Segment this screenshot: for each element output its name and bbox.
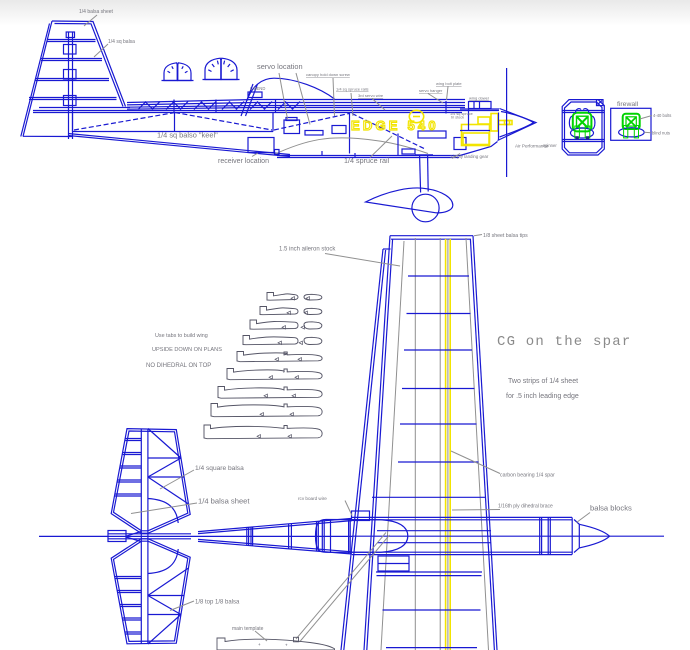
svg-text:receiver location: receiver location	[218, 158, 269, 165]
svg-text:servo location: servo location	[257, 62, 303, 71]
svg-text:main template: main template	[232, 626, 264, 632]
svg-text:spinner: spinner	[543, 143, 557, 148]
svg-text:firewall: firewall	[617, 101, 639, 108]
svg-text:1/8 sheet balsa tips: 1/8 sheet balsa tips	[483, 233, 528, 239]
svg-text:1/4 sq balsa: 1/4 sq balsa	[108, 39, 135, 45]
svg-text:Use tabs to build wing: Use tabs to build wing	[155, 333, 208, 339]
svg-text:3rd servo wire: 3rd servo wire	[358, 93, 384, 98]
svg-text:blind nuts: blind nuts	[652, 131, 670, 136]
svg-text:1/4 balsa sheet: 1/4 balsa sheet	[198, 497, 250, 506]
svg-text:1/4 sq spruce rails: 1/4 sq spruce rails	[336, 87, 368, 92]
svg-text:balsa blocks: balsa blocks	[590, 504, 632, 513]
svg-text:wing bolt plate: wing bolt plate	[436, 81, 462, 86]
svg-text:4-40 bolts: 4-40 bolts	[653, 113, 671, 118]
svg-text:L-BEND: L-BEND	[250, 86, 265, 91]
svg-text:1/16th ply dihedral brace: 1/16th ply dihedral brace	[498, 504, 553, 510]
svg-text:servo hanger: servo hanger	[419, 88, 443, 93]
svg-text:+: +	[285, 642, 288, 647]
svg-text:+: +	[258, 642, 261, 647]
svg-text:CG on the spar: CG on the spar	[497, 334, 631, 350]
svg-text:EDGE 540: EDGE 540	[351, 118, 439, 133]
svg-text:1/4 sq balso "keel": 1/4 sq balso "keel"	[157, 131, 218, 140]
svg-text:wing dowel: wing dowel	[469, 95, 489, 100]
svg-text:rcv board wire: rcv board wire	[298, 496, 327, 501]
svg-text:1.5 inch aileron stock: 1.5 inch aileron stock	[279, 247, 336, 253]
svg-text:Two strips of 1/4 sheet: Two strips of 1/4 sheet	[508, 378, 578, 385]
svg-text:canopy hold down screw: canopy hold down screw	[306, 72, 350, 77]
svg-text:for .5 inch leading edge: for .5 inch leading edge	[506, 393, 579, 400]
svg-text:NO DIHEDRAL ON TOP: NO DIHEDRAL ON TOP	[146, 363, 211, 369]
svg-text:tri stock: tri stock	[451, 116, 464, 120]
svg-text:carbon bearing 1/4 spar: carbon bearing 1/4 spar	[500, 473, 555, 479]
svg-text:UPSIDE DOWN ON PLANS: UPSIDE DOWN ON PLANS	[152, 347, 222, 353]
svg-text:1/4 balsa sheet: 1/4 balsa sheet	[79, 9, 114, 15]
svg-text:1/4 spruce rail: 1/4 spruce rail	[344, 156, 390, 165]
svg-text:1/8 top 1/8 balsa: 1/8 top 1/8 balsa	[195, 600, 240, 606]
svg-text:1/4 square balsa: 1/4 square balsa	[195, 465, 244, 472]
